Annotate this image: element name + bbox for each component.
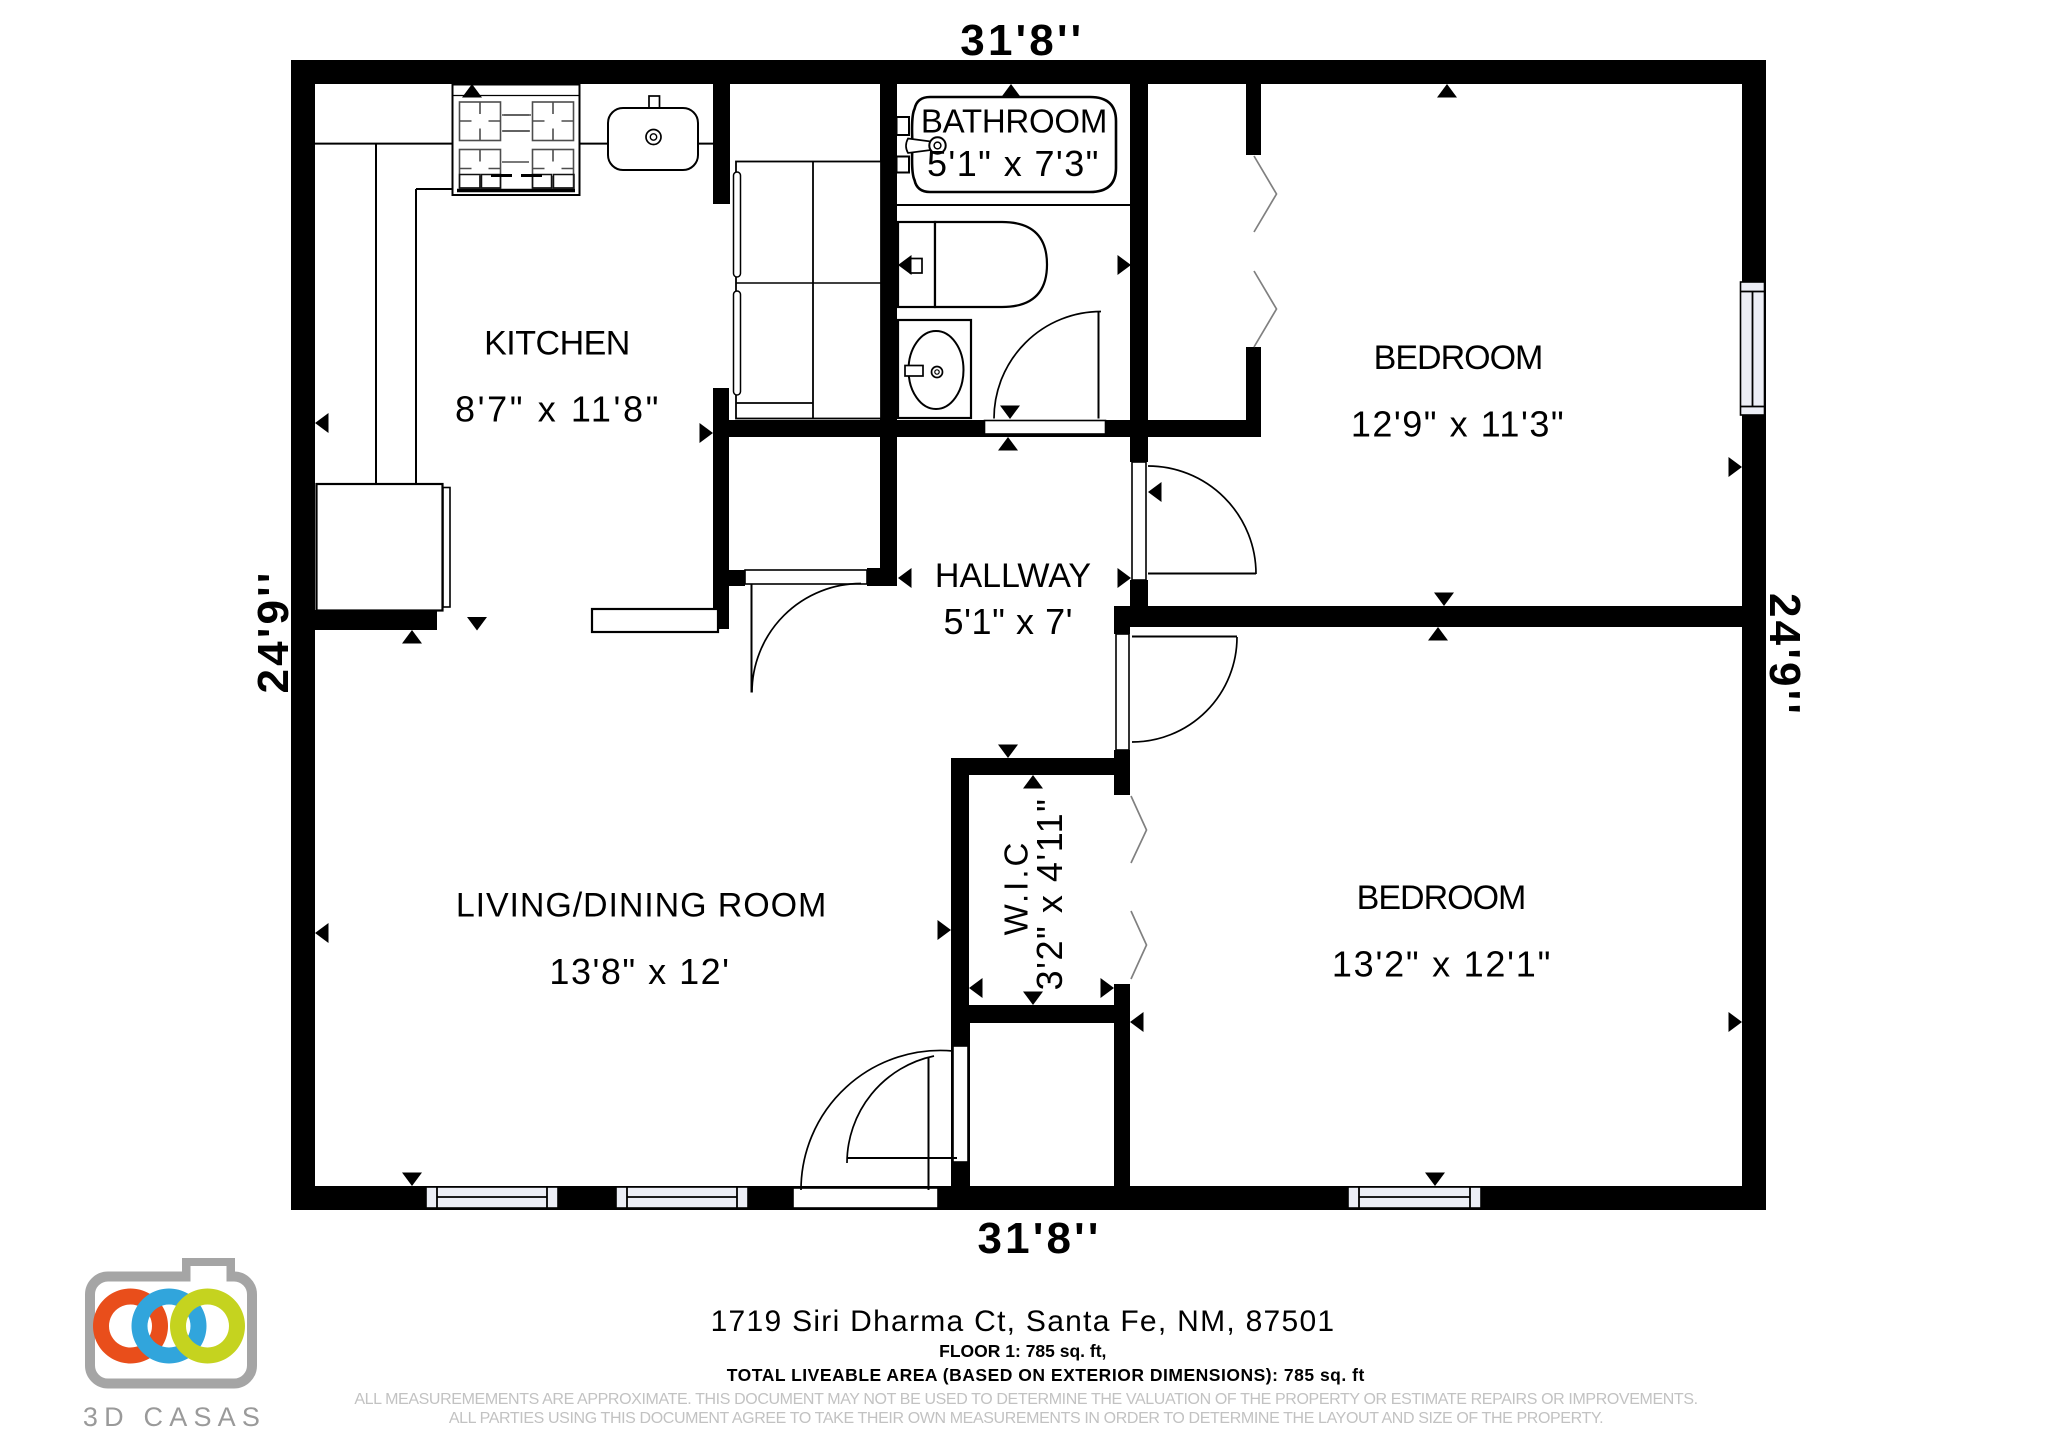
svg-text:5'1" x 7': 5'1" x 7' xyxy=(944,601,1074,642)
svg-text:31'8'': 31'8'' xyxy=(960,16,1084,65)
svg-text:24'9'': 24'9'' xyxy=(249,569,298,693)
svg-text:TOTAL LIVEABLE AREA (BASED ON: TOTAL LIVEABLE AREA (BASED ON EXTERIOR D… xyxy=(727,1365,1365,1385)
svg-text:ALL PARTIES USING THIS DOCUMEN: ALL PARTIES USING THIS DOCUMENT AGREE TO… xyxy=(449,1410,1603,1427)
svg-text:BATHROOM: BATHROOM xyxy=(921,103,1107,140)
svg-text:LIVING/DINING ROOM: LIVING/DINING ROOM xyxy=(456,887,827,925)
svg-text:FLOOR 1: 785 sq. ft,: FLOOR 1: 785 sq. ft, xyxy=(939,1341,1106,1361)
svg-text:ALL MEASUREMEMENTS ARE APPROXI: ALL MEASUREMEMENTS ARE APPROXIMATE. THIS… xyxy=(354,1391,1697,1408)
svg-text:KITCHEN: KITCHEN xyxy=(484,325,630,363)
svg-text:BEDROOM: BEDROOM xyxy=(1374,339,1543,377)
svg-text:3D CASAS: 3D CASAS xyxy=(83,1402,266,1432)
svg-text:3'2" x 4'11": 3'2" x 4'11" xyxy=(1029,798,1070,991)
svg-text:BEDROOM: BEDROOM xyxy=(1357,879,1526,917)
svg-text:5'1" x 7'3": 5'1" x 7'3" xyxy=(927,143,1100,184)
svg-text:31'8'': 31'8'' xyxy=(977,1214,1101,1263)
svg-text:13'8" x 12': 13'8" x 12' xyxy=(549,951,730,992)
svg-text:13'2" x 12'1": 13'2" x 12'1" xyxy=(1332,944,1552,985)
svg-text:24'9'': 24'9'' xyxy=(1760,593,1809,717)
svg-text:8'7" x 11'8": 8'7" x 11'8" xyxy=(455,389,661,430)
svg-text:HALLWAY: HALLWAY xyxy=(935,557,1091,595)
svg-text:1719 Siri Dharma Ct, Santa Fe,: 1719 Siri Dharma Ct, Santa Fe, NM, 87501 xyxy=(711,1305,1336,1338)
svg-text:12'9" x 11'3": 12'9" x 11'3" xyxy=(1351,404,1565,445)
